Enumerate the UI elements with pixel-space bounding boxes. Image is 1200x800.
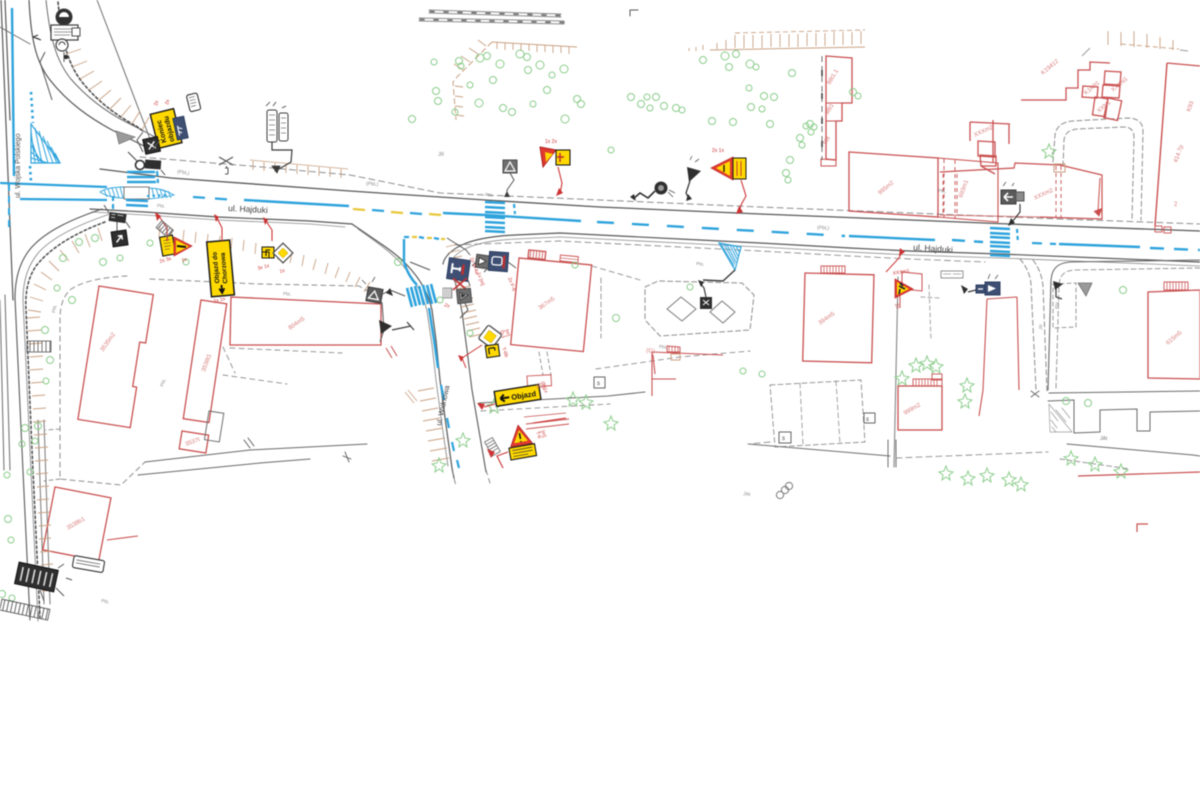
svg-text:s: s	[782, 436, 785, 442]
svg-text:PbL: PbL	[1054, 300, 1060, 309]
svg-text:JAt: JAt	[1100, 436, 1108, 442]
svg-text:s: s	[597, 381, 600, 387]
svg-text:JR: JR	[438, 152, 445, 158]
svg-text:PbL: PbL	[157, 203, 166, 209]
svg-text:2x 1x: 2x 1x	[712, 148, 724, 154]
svg-text:ul. Hajduki: ul. Hajduki	[228, 203, 268, 215]
svg-text:(PbL): (PbL)	[366, 181, 379, 188]
svg-text:1x 2x: 1x 2x	[545, 139, 557, 145]
svg-text:(PbL): (PbL)	[817, 225, 830, 232]
svg-text:(G): (G)	[646, 348, 655, 355]
svg-text:ul. Wojska Polskiego: ul. Wojska Polskiego	[15, 133, 22, 198]
svg-text:PbL: PbL	[696, 261, 705, 267]
svg-text:PbL: PbL	[938, 188, 947, 194]
svg-text:PbL: PbL	[659, 344, 668, 350]
svg-text:PbL: PbL	[283, 291, 292, 297]
svg-text:PbL: PbL	[485, 192, 494, 198]
svg-text:s: s	[866, 417, 869, 423]
